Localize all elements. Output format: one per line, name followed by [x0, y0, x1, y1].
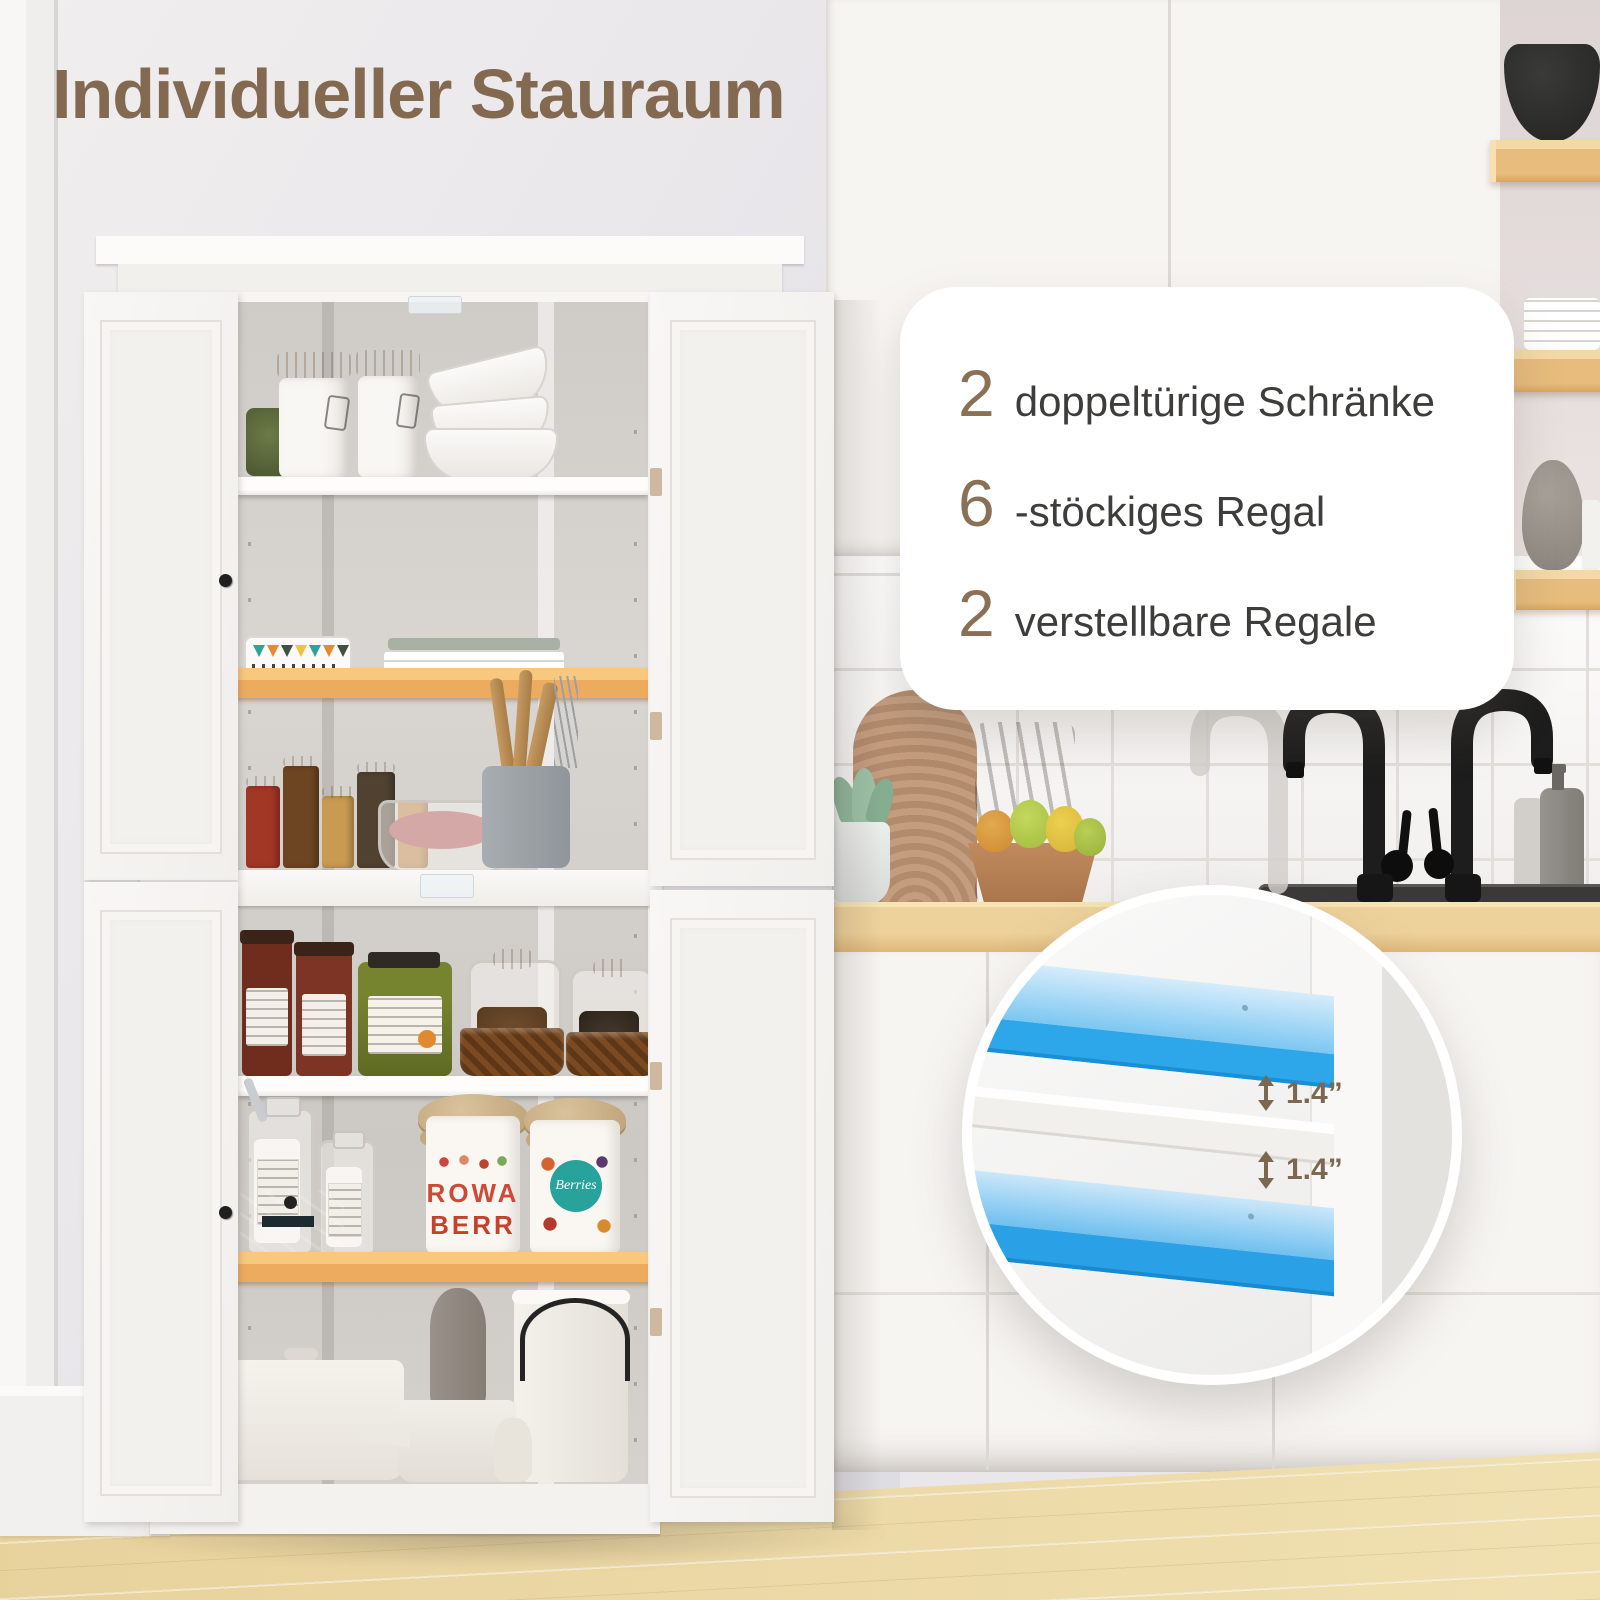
feature-label: -stöckiges Regal: [1015, 488, 1325, 536]
triangle-pattern: [252, 644, 350, 662]
door-catch: [420, 874, 474, 898]
shelf-front-face: [972, 1093, 1334, 1165]
inset-background: [1382, 895, 1452, 1375]
feature-row-adjustable: 2 verstellbare Regale: [958, 575, 1377, 651]
spice-lid: [283, 756, 319, 768]
feature-row-tiers: 6 -stöckiges Regal: [958, 465, 1325, 541]
white-bowl-large: [424, 428, 558, 482]
cabinet-cornice-lower: [118, 264, 782, 292]
pear-green: [1010, 800, 1050, 848]
jar-text-line2: BERR: [426, 1210, 520, 1241]
berry-art: [434, 1152, 512, 1174]
shelf-pin-hole: [1242, 1005, 1248, 1012]
wicker-basket-1: [460, 1028, 564, 1076]
door-panel: [670, 320, 816, 860]
left-door-upper: [84, 292, 238, 880]
spice-lid: [357, 762, 395, 774]
zoom-inset-circle: 1.4” 1.4”: [962, 885, 1462, 1385]
spice-jar: [283, 766, 319, 868]
clamp-lid: [333, 1131, 365, 1149]
pear-orange: [976, 810, 1014, 852]
orange-art: [418, 1030, 436, 1048]
shelf-board-1: [238, 477, 648, 495]
shelf-pin-hole: [1248, 1213, 1254, 1220]
right-door-lower: [650, 890, 834, 1522]
utensil-crock: [482, 766, 570, 868]
spice-jar: [322, 796, 354, 868]
wood-shelf-board-2: [1506, 350, 1600, 392]
green-plates: [388, 638, 560, 650]
white-middle-shelf: [972, 1083, 1334, 1188]
white-cup: [1582, 500, 1600, 570]
jar-lid: [368, 952, 440, 968]
jam-label: [246, 988, 288, 1046]
door-panel: [100, 910, 222, 1496]
feature-number: 6: [958, 465, 995, 541]
spice-jar: [246, 786, 280, 868]
shelf-board-3: [238, 1076, 648, 1096]
faucet-gooseneck-left: [1294, 702, 1374, 888]
door-panel: [100, 320, 222, 854]
shelf-pin-holes: [634, 422, 637, 1442]
jam-label: [302, 994, 346, 1056]
canister-clamp: [324, 395, 351, 432]
canister-lid: [356, 350, 420, 376]
faucet-shadow: [1200, 706, 1278, 884]
door-hinge: [650, 1308, 662, 1336]
wicker-basket-2: [566, 1032, 648, 1076]
gray-vase: [1522, 460, 1584, 570]
left-door-lower: [84, 882, 238, 1522]
pink-bowl-interior: [389, 811, 495, 849]
jam-lid: [294, 942, 354, 956]
cork-lid: [493, 949, 533, 969]
feature-label: doppeltürige Schränke: [1015, 378, 1435, 426]
page-title: Individueller Stauraum: [52, 54, 785, 134]
arrow-down-icon: [1258, 1178, 1274, 1189]
blue-wooden-box: [240, 1190, 344, 1254]
faucet-nozzle-right: [1534, 758, 1552, 774]
spice-lid: [246, 776, 280, 788]
inset-content: 1.4” 1.4”: [972, 895, 1452, 1375]
fruit-bowl: [968, 843, 1098, 911]
berries-jar: Berries: [530, 1120, 620, 1254]
jam-jar-2: [296, 950, 352, 1076]
box-slot: [262, 1216, 314, 1227]
rowan-berry-jar: ROWA BERR: [426, 1116, 520, 1254]
white-stockpot: [238, 1360, 404, 1480]
berries-badge: Berries: [550, 1160, 602, 1212]
door-hinge: [650, 1062, 662, 1090]
product-marketing-image: ROWA BERR Berries: [0, 0, 1600, 1600]
feature-number: 2: [958, 575, 995, 651]
adjustable-shelf-2: [238, 1252, 648, 1282]
pot-lid-knob: [284, 1348, 318, 1360]
bucket-handle: [520, 1298, 630, 1381]
door-knob: [219, 574, 232, 587]
measurement-label-2: 1.4”: [1286, 1153, 1343, 1187]
whisk: [554, 676, 578, 768]
adjustable-shelf-1: [238, 668, 648, 698]
door-hinge: [650, 468, 662, 496]
feature-number: 2: [958, 355, 995, 431]
door-hinge: [650, 712, 662, 740]
feature-label: verstellbare Regale: [1015, 598, 1377, 646]
jam-lid: [240, 930, 294, 944]
highlighted-shelf-2: [972, 1167, 1334, 1292]
cork-lid: [593, 959, 629, 977]
arrow-line: [1264, 1160, 1268, 1180]
highlighted-shelf-1: [972, 955, 1334, 1084]
arrow-down-icon: [1258, 1100, 1274, 1111]
door-knob: [219, 1206, 232, 1219]
measurement-label-1: 1.4”: [1286, 1077, 1343, 1111]
feature-row-cabinets: 2 doppeltürige Schränke: [958, 355, 1435, 431]
right-door-upper: [650, 292, 834, 886]
door-catch-top: [408, 296, 462, 314]
faucet-gooseneck-right: [1462, 700, 1542, 888]
cabinet-cornice: [96, 236, 804, 264]
marmalade-label: [368, 996, 442, 1054]
clamp-lid: [265, 1097, 301, 1117]
feature-card: 2 doppeltürige Schränke 6 -stöckiges Reg…: [900, 287, 1514, 710]
box-knob: [284, 1196, 297, 1209]
canister-lid: [277, 352, 351, 378]
jar-text-line1: ROWA: [426, 1178, 520, 1209]
small-jug: [494, 1418, 532, 1482]
door-frame: [0, 0, 58, 1600]
spice-lid: [322, 786, 354, 798]
cabinet-interior: ROWA BERR Berries: [238, 302, 648, 1510]
wood-shelf-board-1: [1490, 140, 1600, 182]
plate-stack: [1524, 298, 1600, 350]
marmalade-jar: [358, 962, 452, 1076]
cabinet-wall-shadow: [832, 300, 882, 1530]
door-panel: [670, 918, 816, 1498]
faucet-nozzle-left: [1286, 762, 1304, 778]
jam-jar-strawberry: [242, 938, 292, 1076]
